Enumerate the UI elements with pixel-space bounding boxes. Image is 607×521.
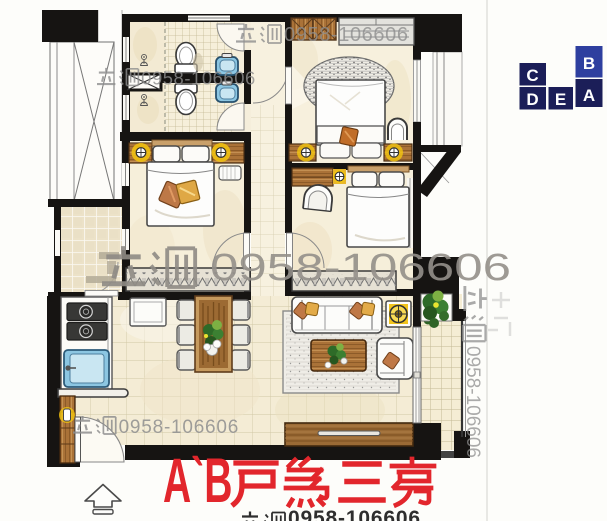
svg-text:0958-106606: 0958-106606 <box>210 247 511 289</box>
svg-text:0958-106606: 0958-106606 <box>288 507 420 521</box>
svg-text:0958-106606: 0958-106606 <box>284 24 408 46</box>
svg-text:C: C <box>526 66 538 85</box>
svg-text:A: A <box>583 86 595 105</box>
svg-text:0958-106606: 0958-106606 <box>141 67 255 88</box>
svg-text:A`B: A`B <box>163 447 232 517</box>
svg-text:0958-106606: 0958-106606 <box>462 346 483 458</box>
svg-text:0958-106606: 0958-106606 <box>119 417 239 438</box>
svg-text:B: B <box>583 54 595 73</box>
svg-text:E: E <box>555 90 566 109</box>
svg-text:D: D <box>526 90 538 109</box>
